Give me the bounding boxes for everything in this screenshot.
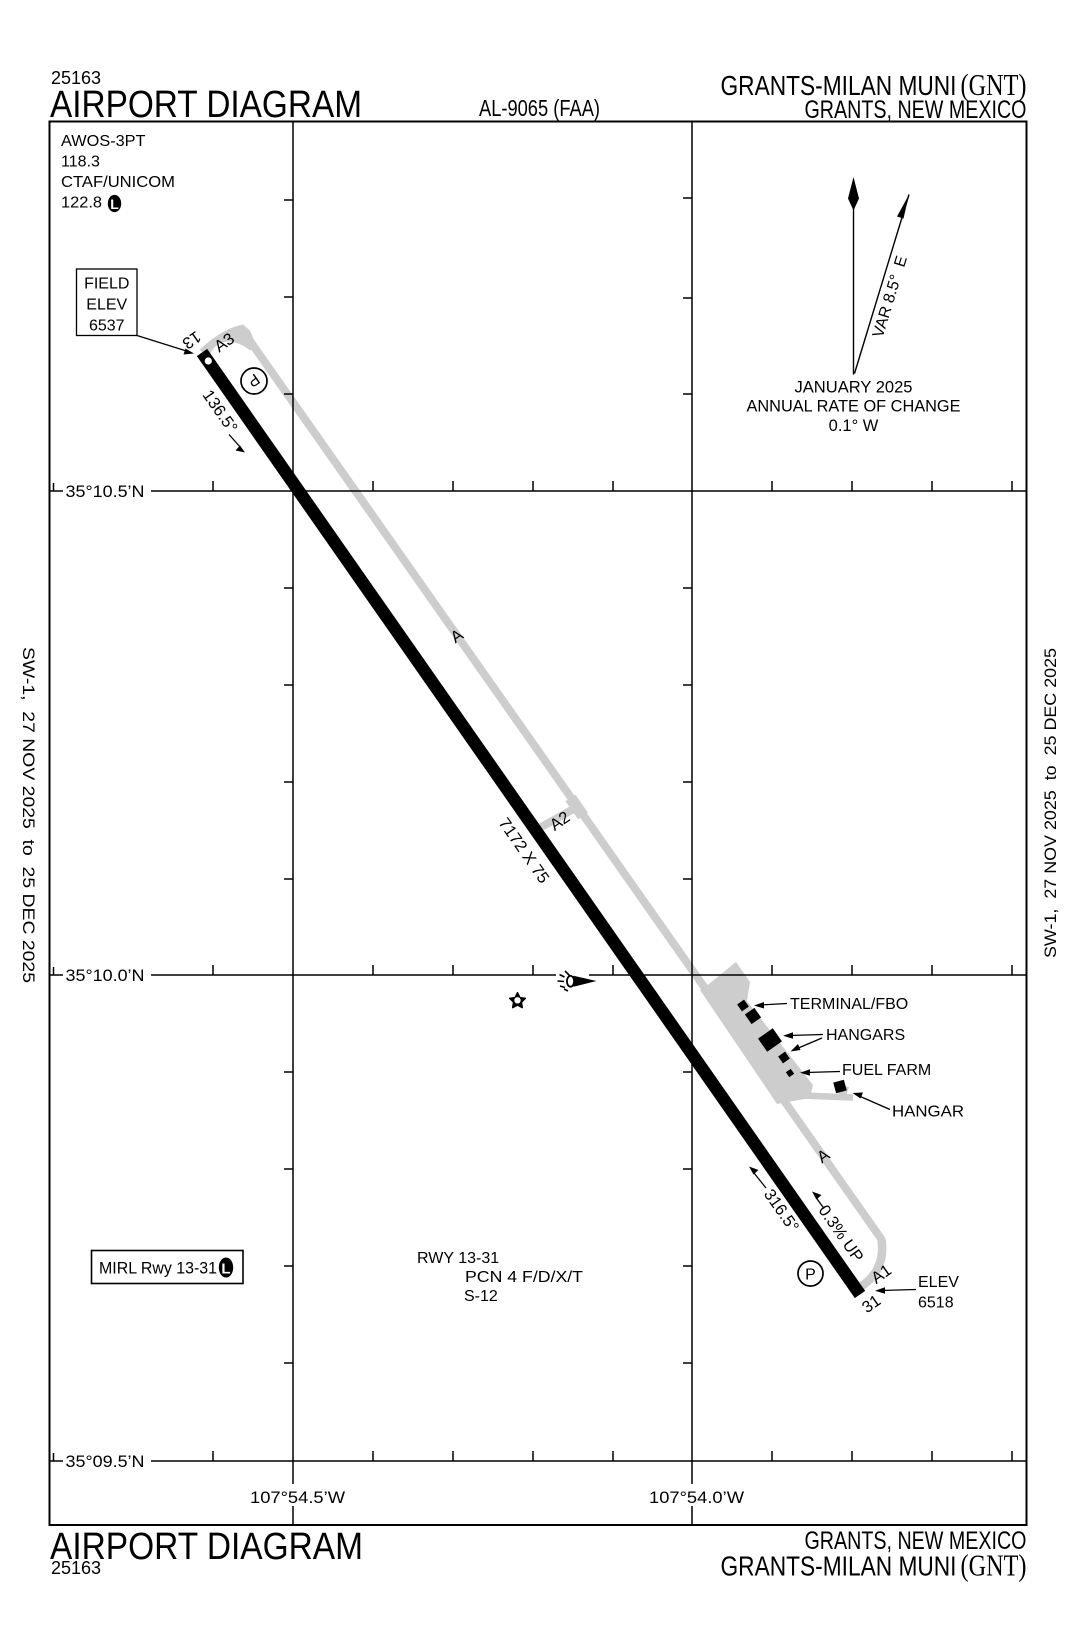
- svg-text:ANNUAL RATE OF CHANGE: ANNUAL RATE OF CHANGE: [747, 398, 961, 416]
- svg-text:S-12: S-12: [464, 1288, 498, 1305]
- svg-text:107°54.5’W: 107°54.5’W: [250, 1489, 345, 1507]
- svg-text:AIRPORT DIAGRAM: AIRPORT DIAGRAM: [50, 84, 362, 126]
- svg-text:0.1° W: 0.1° W: [829, 417, 879, 435]
- svg-text:6518: 6518: [918, 1295, 954, 1312]
- svg-text:JANUARY 2025: JANUARY 2025: [795, 379, 913, 397]
- svg-text:35°10.0’N: 35°10.0’N: [66, 967, 145, 985]
- svg-text:25163: 25163: [51, 1558, 101, 1578]
- svg-text:CTAF/UNICOM: CTAF/UNICOM: [61, 174, 175, 191]
- svg-text:ELEV: ELEV: [86, 297, 127, 314]
- svg-text:HANGAR: HANGAR: [892, 1104, 964, 1121]
- svg-text:35°10.5’N: 35°10.5’N: [66, 483, 145, 501]
- svg-text:AL-9065 (FAA): AL-9065 (FAA): [479, 95, 600, 121]
- svg-text:GRANTS-MILAN MUNI: GRANTS-MILAN MUNI: [721, 1551, 957, 1582]
- svg-text:118.3: 118.3: [61, 154, 100, 171]
- svg-text:AWOS-3PT: AWOS-3PT: [61, 133, 146, 150]
- svg-text:107°54.0’W: 107°54.0’W: [649, 1489, 744, 1507]
- svg-text:PCN 4 F/D/X/T: PCN 4 F/D/X/T: [465, 1269, 583, 1286]
- svg-text:TERMINAL/FBO: TERMINAL/FBO: [790, 996, 908, 1013]
- svg-text:L: L: [110, 196, 119, 212]
- svg-text:FIELD: FIELD: [84, 276, 129, 293]
- svg-text:RWY 13-31: RWY 13-31: [417, 1250, 499, 1267]
- svg-text:(GNT): (GNT): [961, 1548, 1027, 1583]
- svg-text:ELEV: ELEV: [918, 1274, 959, 1291]
- svg-text:6537: 6537: [89, 318, 125, 335]
- svg-text:GRANTS, NEW MEXICO: GRANTS, NEW MEXICO: [805, 96, 1027, 124]
- svg-text:P: P: [805, 1267, 816, 1284]
- svg-text:HANGARS: HANGARS: [826, 1027, 905, 1044]
- svg-text:35°09.5’N: 35°09.5’N: [66, 1453, 145, 1471]
- svg-text:L: L: [221, 1260, 230, 1277]
- svg-text:SW-1, 27 NOV 2025 to 25 DEC: SW-1, 27 NOV 2025 to 25 DEC 2025: [1041, 648, 1060, 958]
- svg-text:SW-1, 27 NOV 2025 to 25 DEC: SW-1, 27 NOV 2025 to 25 DEC 2025: [19, 647, 38, 983]
- svg-text:FUEL FARM: FUEL FARM: [842, 1062, 931, 1079]
- svg-text:MIRL Rwy 13-31: MIRL Rwy 13-31: [99, 1260, 217, 1278]
- svg-text:122.8: 122.8: [61, 195, 102, 212]
